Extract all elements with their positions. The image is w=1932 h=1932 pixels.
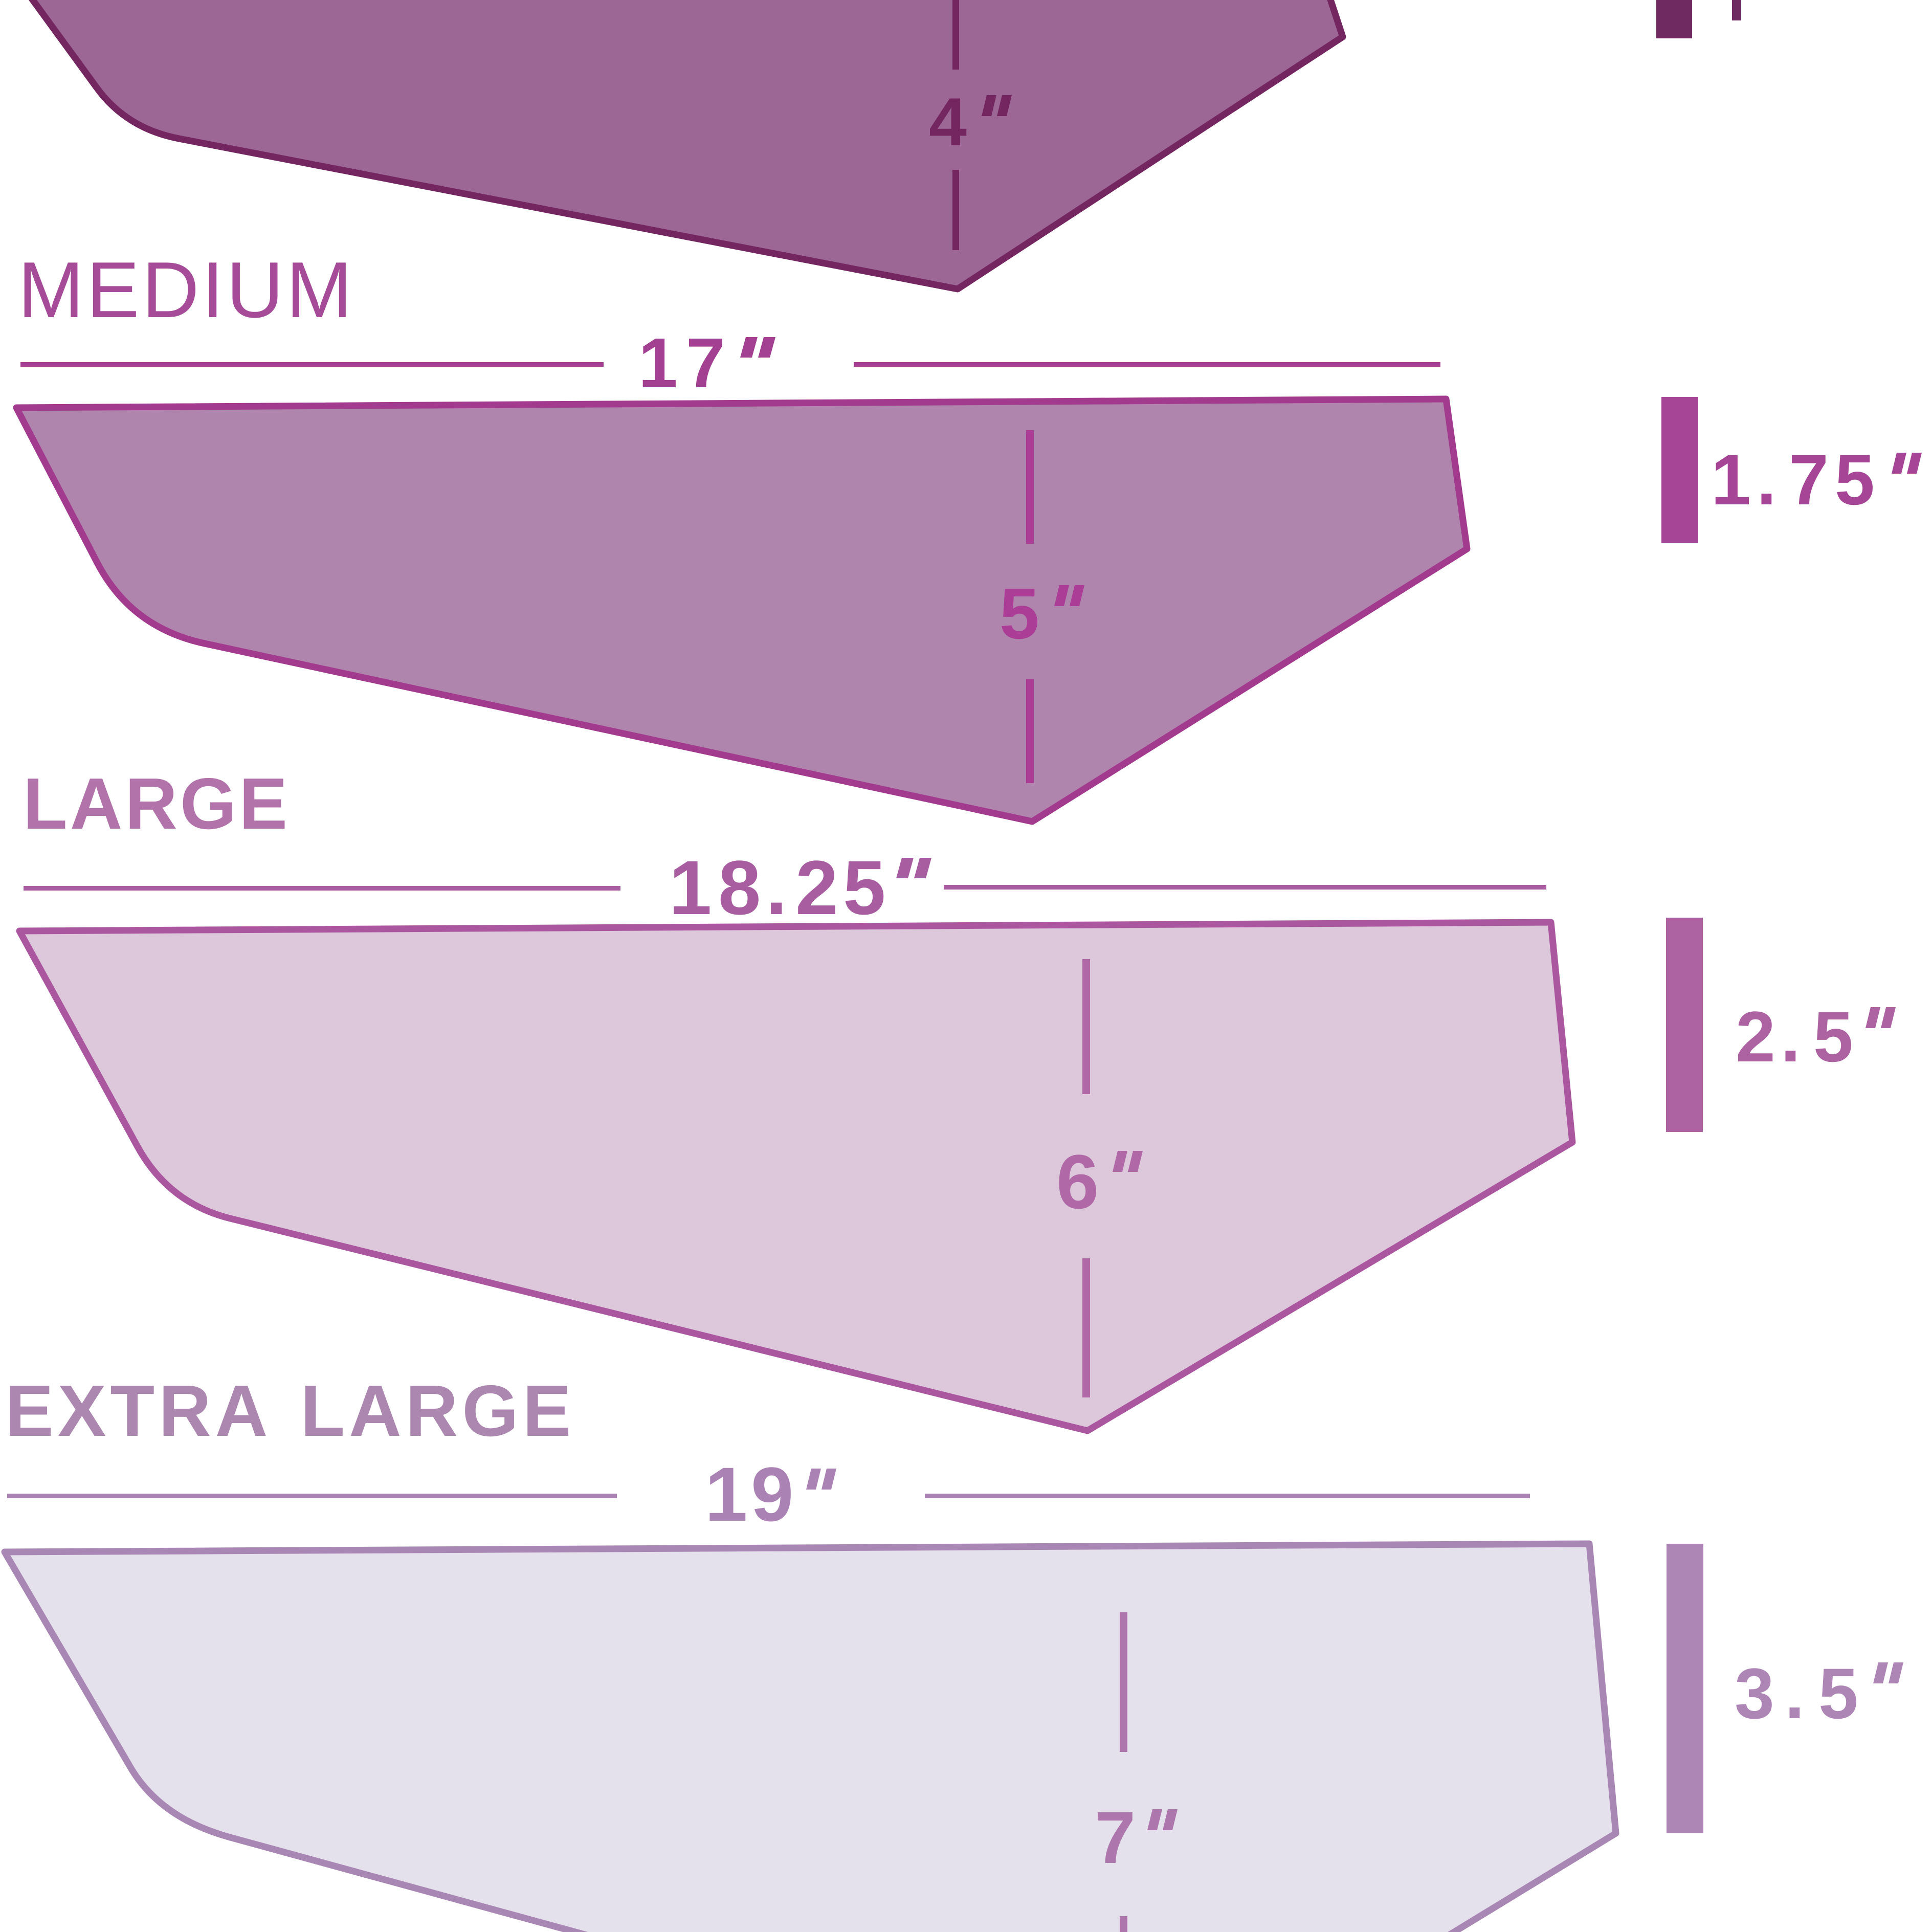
svg-text:7: 7 (1095, 1796, 1136, 1879)
svg-text:.: . (1785, 1653, 1805, 1734)
svg-text:5: 5 (1818, 1653, 1858, 1734)
svg-text:EXTRA LARGE: EXTRA LARGE (5, 1370, 575, 1452)
svg-text:5: 5 (1835, 439, 1875, 520)
svg-text:8: 8 (718, 845, 761, 930)
svg-text:2: 2 (1736, 996, 1775, 1077)
svg-text:5: 5 (843, 845, 885, 930)
svg-text:2: 2 (795, 845, 838, 930)
svg-text:1: 1 (705, 1451, 747, 1537)
svg-text:7: 7 (686, 324, 725, 403)
svg-text:7: 7 (1789, 439, 1829, 520)
svg-text:6: 6 (1056, 1139, 1099, 1225)
svg-text:4: 4 (929, 84, 967, 160)
svg-text:.: . (766, 845, 787, 930)
svg-text:3: 3 (1735, 1653, 1774, 1734)
svg-text:5: 5 (1813, 996, 1853, 1077)
svg-text:9: 9 (751, 1451, 793, 1537)
svg-text:1: 1 (638, 324, 678, 403)
svg-text:.: . (1781, 996, 1801, 1077)
svg-text:1: 1 (1711, 439, 1751, 520)
svg-text:MEDIUM: MEDIUM (18, 246, 355, 334)
svg-text:5: 5 (1000, 573, 1039, 654)
svg-text:1: 1 (669, 845, 712, 930)
svg-text:LARGE: LARGE (23, 763, 290, 845)
svg-text:.: . (1757, 439, 1776, 520)
